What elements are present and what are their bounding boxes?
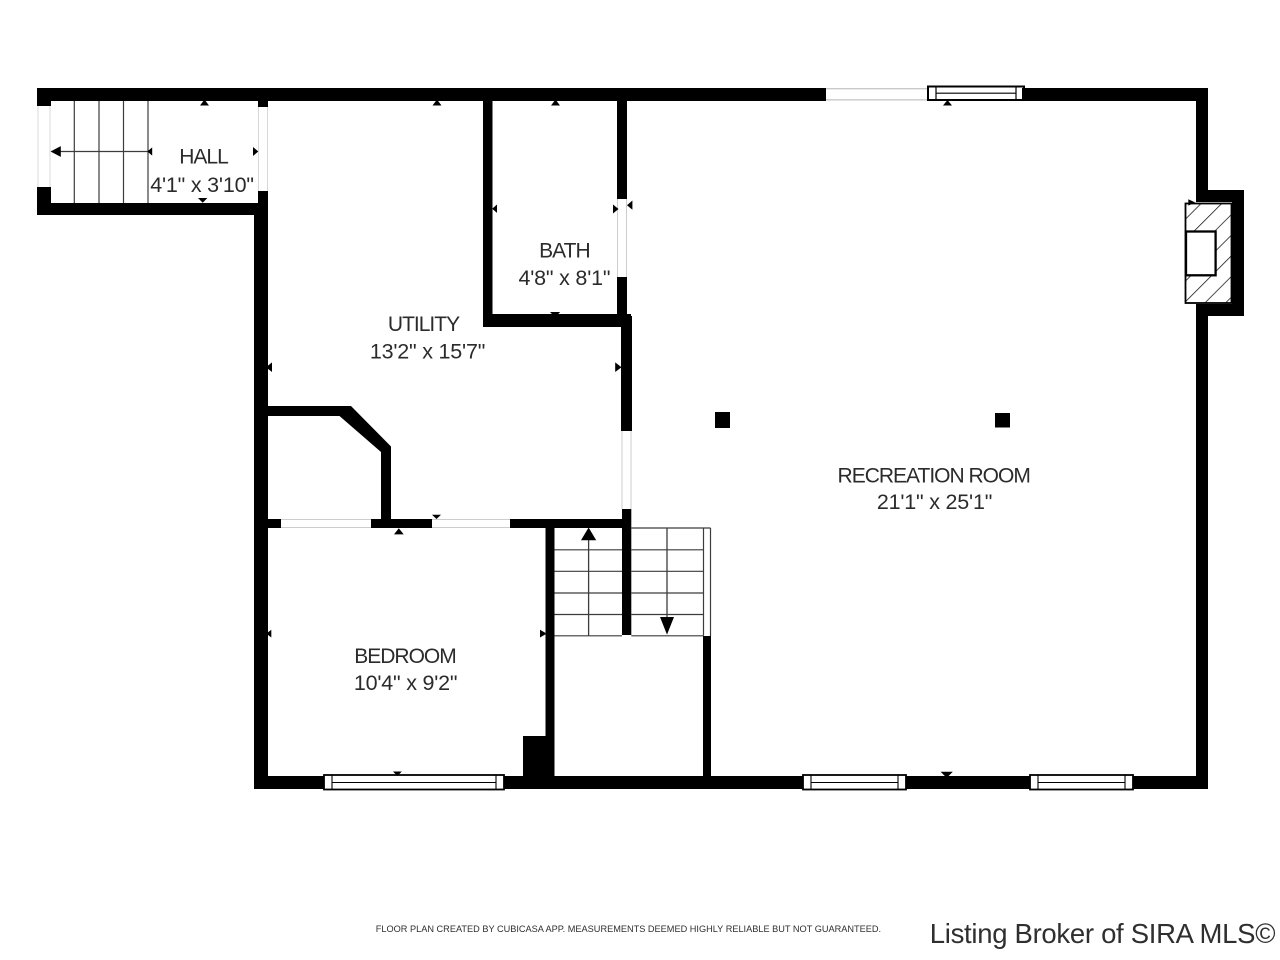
svg-text:13'2" x 15'7": 13'2" x 15'7" <box>370 339 485 363</box>
svg-text:FLOOR PLAN CREATED BY CUBICASA: FLOOR PLAN CREATED BY CUBICASA APP. MEAS… <box>376 924 881 934</box>
svg-text:BEDROOM: BEDROOM <box>354 645 456 668</box>
svg-text:Listing Broker of SIRA MLS©: Listing Broker of SIRA MLS© <box>930 918 1275 949</box>
svg-text:RECREATION ROOM: RECREATION ROOM <box>838 465 1030 488</box>
svg-text:UTILITY: UTILITY <box>388 313 460 336</box>
svg-text:4'8" x 8'1": 4'8" x 8'1" <box>518 266 610 290</box>
svg-text:4'1" x 3'10": 4'1" x 3'10" <box>150 173 254 197</box>
svg-text:BATH: BATH <box>539 239 589 262</box>
svg-text:HALL: HALL <box>179 146 228 169</box>
svg-text:10'4" x 9'2": 10'4" x 9'2" <box>354 671 458 695</box>
svg-text:21'1" x 25'1": 21'1" x 25'1" <box>877 490 992 514</box>
